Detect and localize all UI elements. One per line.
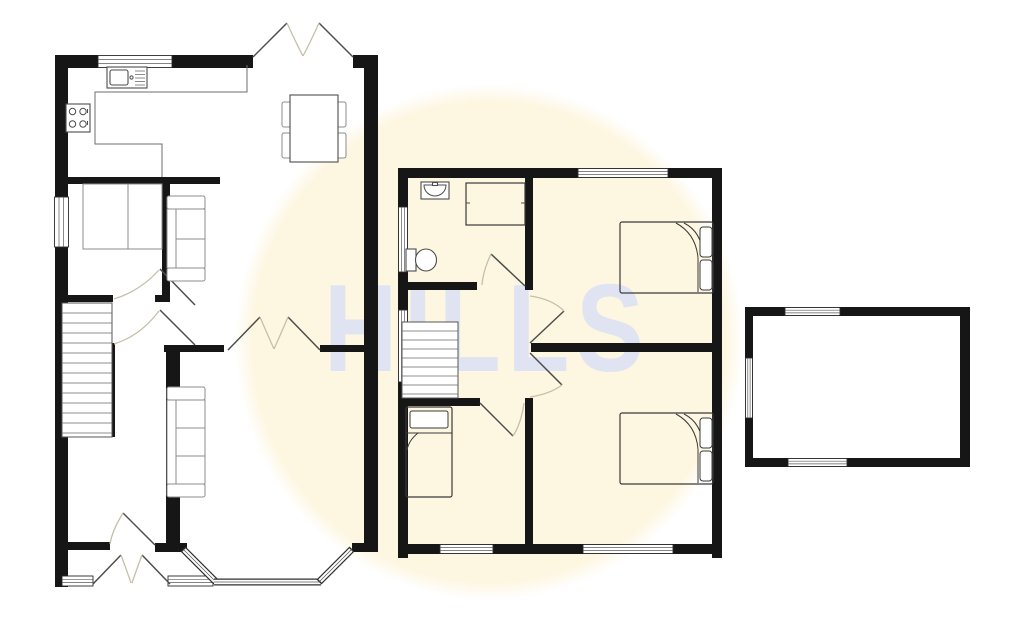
cupboard-unit <box>83 184 162 249</box>
garage-rear-window <box>785 308 840 316</box>
floorplan-canvas: HILLS <box>0 0 1024 642</box>
floorplan-page: HILLS <box>0 0 1024 642</box>
garage-side-door <box>746 358 753 418</box>
dining-table <box>282 95 346 162</box>
hall-door-front-room <box>114 310 195 345</box>
garage-walls <box>745 307 970 467</box>
hob <box>66 104 90 132</box>
garage-front-window <box>788 459 847 467</box>
front-room-sofa <box>167 387 205 497</box>
garage-plan <box>745 307 970 467</box>
wash-basin <box>421 182 449 199</box>
bedroom2-window <box>583 545 673 554</box>
first-floor-staircase <box>402 322 458 398</box>
porch-inner-door <box>110 513 155 545</box>
diner-sofa <box>167 196 205 281</box>
garden-french-doors <box>253 23 353 57</box>
kitchen-sink <box>107 67 147 88</box>
toilet <box>406 249 437 271</box>
entrance-double-doors <box>93 555 170 584</box>
kitchen-window <box>98 56 172 68</box>
sitting-room-window <box>55 197 69 247</box>
bay-window <box>183 549 352 582</box>
bedroom3-window <box>440 545 493 554</box>
porch-window-right <box>168 576 213 586</box>
porch-window-left <box>62 576 93 586</box>
bedroom1-window <box>578 169 668 178</box>
ground-floor-staircase <box>62 303 112 437</box>
